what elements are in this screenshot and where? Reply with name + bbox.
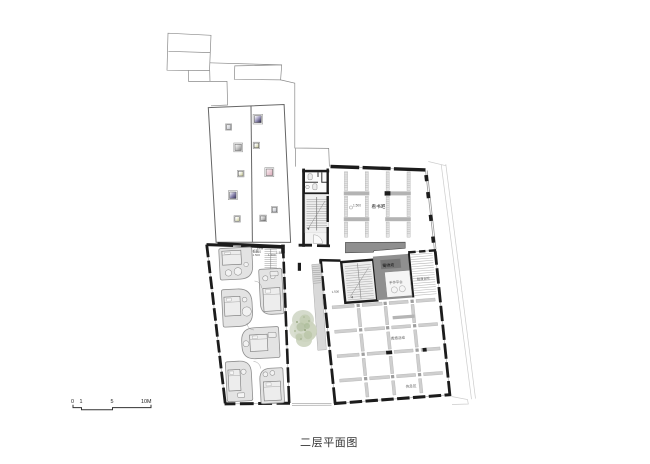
svg-text:青旅活动: 青旅活动 <box>390 335 405 341</box>
svg-text:休息区: 休息区 <box>405 383 417 389</box>
svg-text:蜀绣坊: 蜀绣坊 <box>382 261 395 268</box>
svg-text:二层平面图: 二层平面图 <box>300 436 358 449</box>
svg-text:看书吧: 看书吧 <box>372 203 386 210</box>
svg-text:5: 5 <box>111 399 114 405</box>
svg-text:观演台阶: 观演台阶 <box>417 275 431 281</box>
svg-text:0: 0 <box>71 399 74 405</box>
svg-text:1.500: 1.500 <box>331 289 339 294</box>
svg-text:1.500: 1.500 <box>253 253 261 257</box>
svg-text:1.500: 1.500 <box>268 253 276 257</box>
svg-text:1: 1 <box>80 399 83 405</box>
svg-text:1.500: 1.500 <box>353 204 361 208</box>
svg-text:10M: 10M <box>141 399 152 405</box>
svg-text:手作平台: 手作平台 <box>389 279 404 285</box>
